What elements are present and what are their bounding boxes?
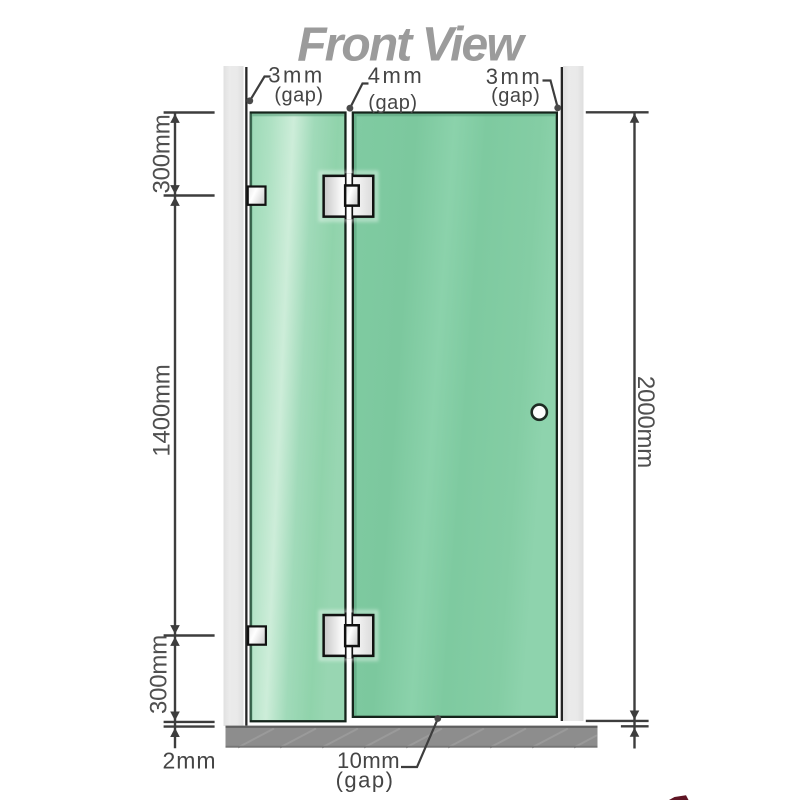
svg-text:1400mm: 1400mm: [149, 364, 176, 456]
svg-text:4mm: 4mm: [368, 63, 424, 88]
svg-text:(gap): (gap): [336, 768, 395, 793]
svg-text:(gap): (gap): [274, 85, 323, 107]
svg-text:2000mm: 2000mm: [632, 376, 659, 468]
svg-text:300mm: 300mm: [149, 114, 176, 193]
svg-text:2mm: 2mm: [162, 748, 216, 774]
svg-text:(gap): (gap): [368, 92, 417, 114]
svg-text:300mm: 300mm: [146, 635, 173, 714]
svg-text:(gap): (gap): [491, 85, 540, 107]
